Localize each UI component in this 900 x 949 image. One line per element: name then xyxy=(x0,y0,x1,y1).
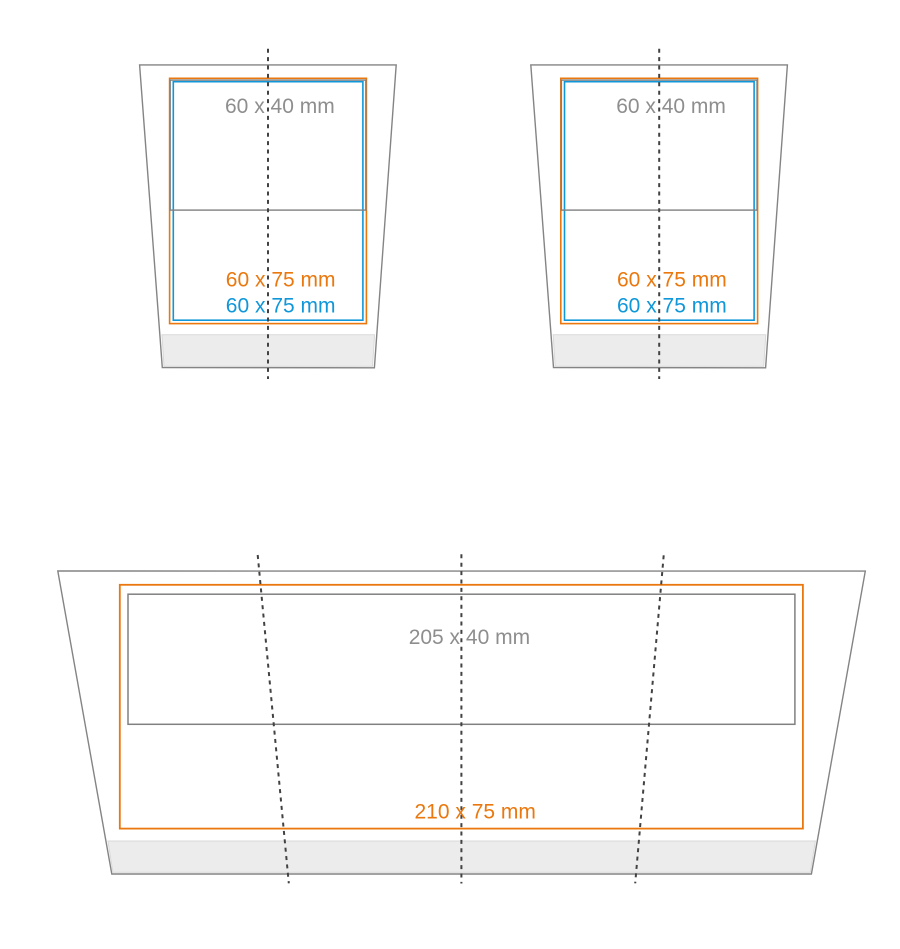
svg-text:205 x 40 mm: 205 x 40 mm xyxy=(409,626,530,649)
svg-text:210 x 75 mm: 210 x 75 mm xyxy=(415,801,536,824)
svg-text:60 x 40 mm: 60 x 40 mm xyxy=(616,95,726,118)
svg-text:60 x 75 mm: 60 x 75 mm xyxy=(226,268,336,291)
svg-text:60 x 75 mm: 60 x 75 mm xyxy=(226,295,336,318)
svg-text:60 x 40 mm: 60 x 40 mm xyxy=(225,95,335,118)
svg-text:60 x 75 mm: 60 x 75 mm xyxy=(617,268,727,291)
svg-text:60 x 75 mm: 60 x 75 mm xyxy=(617,295,727,318)
